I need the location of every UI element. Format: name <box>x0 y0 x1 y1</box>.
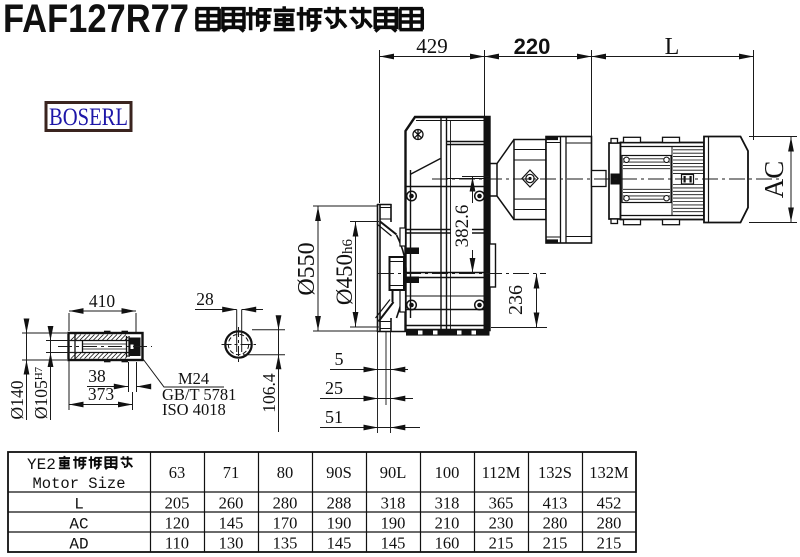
svg-text:145: 145 <box>381 534 406 553</box>
svg-text:170: 170 <box>273 514 298 533</box>
svg-text:413: 413 <box>543 494 568 513</box>
svg-text:280: 280 <box>543 514 568 533</box>
svg-text:38: 38 <box>88 366 106 386</box>
svg-text:FAF127R77: FAF127R77 <box>3 0 189 41</box>
svg-text:205: 205 <box>165 494 190 513</box>
svg-text:145: 145 <box>219 514 244 533</box>
svg-text:YE2: YE2 <box>27 456 56 474</box>
svg-text:5: 5 <box>335 349 344 369</box>
svg-text:145: 145 <box>327 534 352 553</box>
svg-text:230: 230 <box>489 514 514 533</box>
svg-text:63: 63 <box>169 463 186 482</box>
svg-text:220: 220 <box>514 34 551 59</box>
svg-text:90S: 90S <box>326 463 352 482</box>
svg-text:AC: AC <box>759 161 789 199</box>
svg-text:110: 110 <box>165 534 189 553</box>
svg-text:429: 429 <box>416 34 448 58</box>
svg-text:BOSERL: BOSERL <box>49 104 128 131</box>
svg-text:452: 452 <box>597 494 622 513</box>
svg-text:120: 120 <box>165 514 190 533</box>
svg-text:80: 80 <box>277 463 294 482</box>
svg-text:215: 215 <box>489 534 514 553</box>
svg-text:Ø550: Ø550 <box>294 242 320 295</box>
svg-text:210: 210 <box>435 514 460 533</box>
svg-text:51: 51 <box>325 407 343 427</box>
svg-text:382.6: 382.6 <box>452 205 473 248</box>
svg-text:280: 280 <box>273 494 298 513</box>
svg-text:25: 25 <box>325 378 343 398</box>
svg-text:280: 280 <box>597 514 622 533</box>
svg-text:365: 365 <box>489 494 514 513</box>
svg-text:71: 71 <box>223 463 240 482</box>
svg-text:90L: 90L <box>380 463 407 482</box>
svg-text:112M: 112M <box>482 463 521 482</box>
svg-text:28: 28 <box>196 289 214 309</box>
svg-text:ISO 4018: ISO 4018 <box>162 400 226 419</box>
svg-text:L: L <box>74 496 84 514</box>
svg-text:215: 215 <box>597 534 622 553</box>
svg-text:318: 318 <box>381 494 406 513</box>
svg-text:236: 236 <box>505 285 527 315</box>
svg-text:AC: AC <box>69 516 88 534</box>
svg-text:373: 373 <box>88 384 115 404</box>
svg-text:132S: 132S <box>538 463 572 482</box>
svg-text:100: 100 <box>435 463 460 482</box>
svg-text:318: 318 <box>435 494 460 513</box>
svg-text:410: 410 <box>89 291 116 311</box>
svg-text:260: 260 <box>219 494 244 513</box>
svg-text:Motor Size: Motor Size <box>32 475 125 493</box>
svg-text:L: L <box>665 34 680 60</box>
svg-text:106.4: 106.4 <box>259 373 279 413</box>
svg-text:Ø140: Ø140 <box>7 380 27 419</box>
svg-text:AD: AD <box>69 536 88 554</box>
svg-text:132M: 132M <box>589 463 629 482</box>
svg-text:135: 135 <box>273 534 298 553</box>
svg-text:160: 160 <box>435 534 460 553</box>
svg-text:190: 190 <box>381 514 406 533</box>
svg-text:130: 130 <box>219 534 244 553</box>
svg-text:215: 215 <box>543 534 568 553</box>
svg-text:190: 190 <box>327 514 352 533</box>
svg-text:288: 288 <box>327 494 352 513</box>
